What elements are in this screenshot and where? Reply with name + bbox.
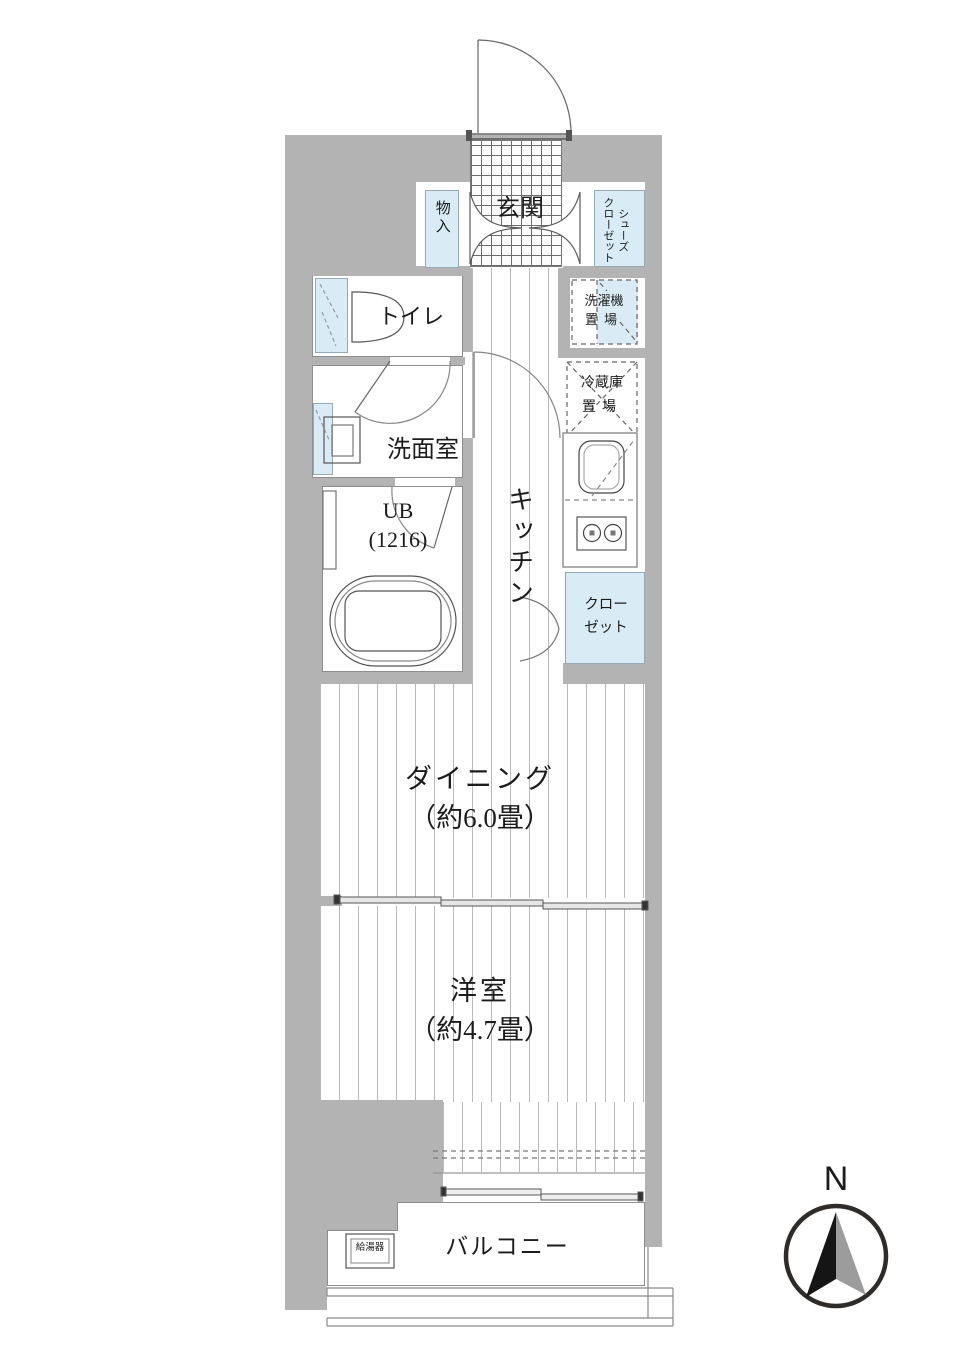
fridge-label: 冷蔵庫 置場 [564, 372, 640, 420]
sliding-partition-icon [334, 895, 648, 910]
balcony-label: バルコニー [400, 1233, 615, 1262]
water-heater-label: 給湯器 [347, 1243, 393, 1255]
washbasin-icon [316, 410, 360, 463]
unit-bath-label: UB (1216) [352, 497, 444, 554]
north-label: N [814, 1158, 858, 1201]
bath-ledge [323, 491, 336, 569]
balcony-window-icon [441, 1187, 643, 1201]
washroom-door-icon [474, 352, 560, 438]
washroom-label: 洗面室 [376, 435, 470, 465]
kitchen-counter-icon [563, 433, 637, 567]
shoes-closet-label: シューズ クローゼット [600, 196, 630, 264]
bedroom-label: 洋室 （約4.7畳） [330, 972, 630, 1050]
toilet-door-icon [355, 361, 450, 423]
dining-label: ダイニング （約6.0畳） [330, 760, 630, 838]
compass-icon [786, 1206, 886, 1306]
closet-label: クロー ゼット [567, 594, 645, 640]
washer-label: 洗濯機 置場 [566, 292, 642, 330]
entry-door-icon [466, 40, 572, 141]
storage-label: 物入 [432, 200, 451, 236]
floor-plan: 玄関 物入 シューズ クローゼット トイレ 洗面室 UB (1216) キッチン… [0, 0, 960, 1360]
genkan-label: 玄関 [470, 194, 570, 224]
bathtub-icon [330, 576, 456, 666]
toilet-label: トイレ [368, 303, 454, 331]
kitchen-label: キッチン [502, 468, 535, 628]
eave-dashed-line [433, 1151, 645, 1158]
